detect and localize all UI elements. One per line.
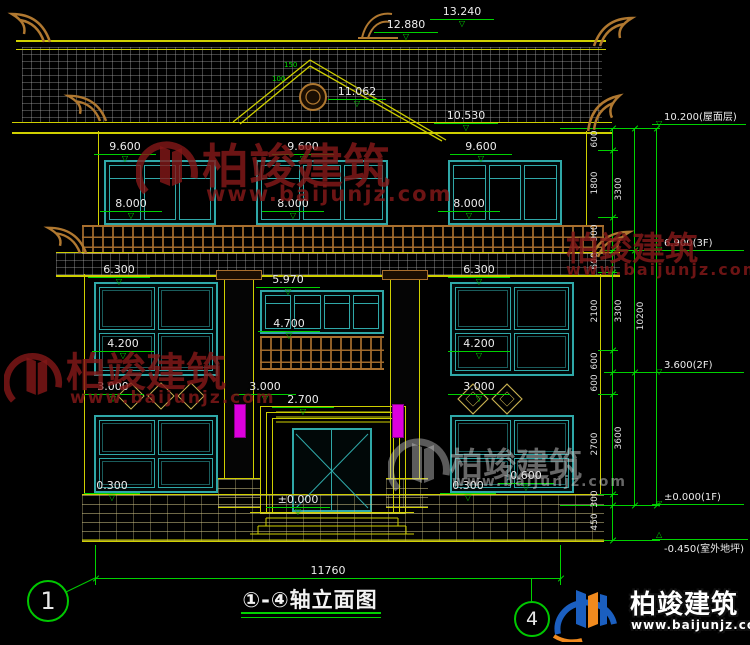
chain-seg-2100: 2100: [590, 294, 600, 328]
dim-arrow-icon: ▽: [476, 278, 482, 285]
dim-arrow-icon: ▽: [354, 100, 360, 107]
chain-seg-450: 450: [590, 505, 600, 539]
dim-zero: ±0.000▽: [266, 494, 330, 515]
dim-arrow-icon: ▽: [262, 395, 268, 402]
dim-arrow-icon: ▽: [403, 33, 409, 40]
level-ground: △ -0.450(室外地坪): [652, 531, 748, 555]
dim-arrow-icon: ▽: [523, 484, 529, 491]
dim-gable-150: 150: [284, 62, 297, 69]
dim-arrow-icon: ▽: [300, 408, 306, 415]
dim-arrow-icon: ▽: [286, 332, 292, 339]
dim-6300-left: 6.300▽: [88, 264, 150, 285]
dim-8000-center: 8.000▽: [262, 198, 324, 219]
level-3f: 6.900(3F) ▽: [652, 238, 744, 251]
dim-arrow-icon: ▽: [122, 155, 128, 162]
dim-arrow-icon: ▽: [463, 124, 469, 131]
dim-arrow-icon: ▽: [465, 494, 471, 501]
dim-arrow-icon: ▽: [295, 508, 301, 515]
diamond-ornament: [178, 383, 204, 409]
dim-0600: 0.600▽: [498, 470, 554, 491]
mid-eave-ornament-left: [48, 228, 86, 253]
dim-arrow-icon: ▽: [128, 212, 134, 219]
roof-corner-ornament-eave-left: [68, 96, 106, 121]
level-marker-icon: ▽: [656, 368, 662, 376]
dim-arrow-icon: ▽: [478, 155, 484, 162]
level-1f: ±0.000(1F) ▽: [652, 492, 744, 505]
dim-3000-left: 3.000▽: [82, 381, 144, 402]
company-logo-url: www.baijunjz.com: [631, 618, 750, 632]
chain-seg-1800: 1800: [590, 166, 600, 200]
axis-bubble-1: 1: [27, 580, 69, 622]
dim-arrow-icon: ▽: [285, 288, 291, 295]
chain-overall-10200: 10200: [636, 299, 646, 333]
level-marker-icon: △: [656, 531, 662, 539]
chain-seg-600b: 600: [590, 244, 600, 278]
roof-corner-ornament-top-left: [12, 14, 50, 42]
dim-10530: 10.530▽: [434, 110, 498, 131]
roof-corner-ornament-eave-right: [582, 96, 625, 131]
dim-11062: 11.062▽: [328, 86, 386, 107]
title-underline-1: [241, 612, 381, 614]
entrance-steps: [250, 518, 414, 534]
dim-0300-right: 0.300▽: [440, 480, 496, 501]
dim-arrow-icon: ▽: [476, 395, 482, 402]
chain-seg-600d: 600: [590, 366, 600, 400]
title-underline-2: [241, 617, 381, 618]
dim-arrow-icon: ▽: [290, 212, 296, 219]
dim-9600-left: 9.600▽: [94, 141, 156, 162]
dim-0300-left: 0.300▽: [84, 480, 140, 501]
chain-seg-600: 600: [590, 122, 600, 156]
cad-elevation-canvas: 13.240▽ 12.880▽ 11.062▽ 10.530▽ 150 100 …: [0, 0, 750, 645]
gable-medallion: [300, 84, 326, 110]
level-marker-icon: ▽: [656, 246, 662, 254]
company-logo-icon: [542, 580, 630, 642]
dim-arrow-icon: ▽: [459, 20, 465, 27]
dim-3000-right: 3.000▽: [448, 381, 510, 402]
level-2f: 3.600(2F) ▽: [652, 360, 744, 373]
chain-subtotal-3600: 3600: [614, 421, 624, 455]
chain-subtotal-3300a: 3300: [614, 172, 624, 206]
roof-corner-ornament-top-right: [594, 18, 632, 46]
dim-arrow-icon: ▽: [300, 155, 306, 162]
level-roof: 10.200(屋面层) ▽: [652, 108, 746, 125]
dim-9600-right: 9.600▽: [450, 141, 512, 162]
dim-arrow-icon: ▽: [476, 352, 482, 359]
dim-9600-center: 9.600▽: [272, 141, 334, 162]
dim-8000-left: 8.000▽: [100, 198, 162, 219]
dim-2700: 2.700▽: [272, 394, 334, 415]
dim-arrow-icon: ▽: [466, 212, 472, 219]
drawing-title: ①-④轴立面图: [215, 584, 405, 614]
dim-12880: 12.880▽: [374, 19, 438, 40]
diamond-ornament: [148, 383, 174, 409]
axis-leader-line: [66, 578, 95, 592]
dim-arrow-icon: ▽: [120, 352, 126, 359]
dim-6300-right: 6.300▽: [448, 264, 510, 285]
dim-4200-left: 4.200▽: [92, 338, 154, 359]
dim-4700: 4.700▽: [258, 318, 320, 339]
dim-arrow-icon: ▽: [109, 494, 115, 501]
chain-seg-2700: 2700: [590, 427, 600, 461]
dim-8000-right: 8.000▽: [438, 198, 500, 219]
dim-13240: 13.240▽: [430, 6, 494, 27]
company-logo-brand: 柏竣建筑: [630, 584, 738, 621]
dim-4200-right: 4.200▽: [448, 338, 510, 359]
dim-11760: 11760: [285, 564, 371, 577]
dim-gable-100: 100: [272, 76, 285, 83]
chain-subtotal-3300b: 3300: [614, 294, 624, 328]
dim-arrow-icon: ▽: [110, 395, 116, 402]
level-marker-icon: ▽: [656, 500, 662, 508]
level-marker-icon: ▽: [656, 120, 662, 128]
dim-5970: 5.970▽: [256, 274, 320, 295]
dim-arrow-icon: ▽: [116, 278, 122, 285]
